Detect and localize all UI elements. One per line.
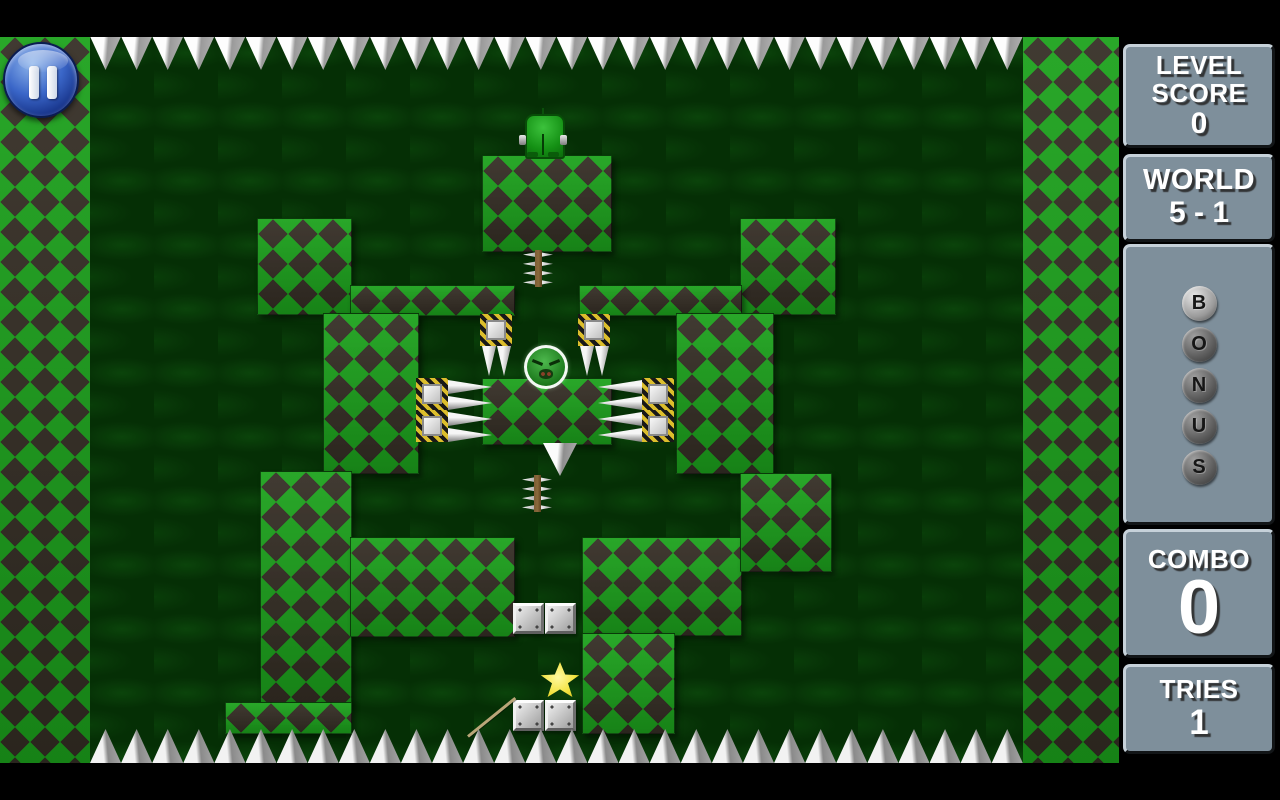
tile-block [323, 313, 419, 474]
spike-icon [525, 729, 556, 763]
level-score-value: 0 [1191, 107, 1208, 142]
spike-icon [556, 729, 587, 763]
spike-icon [214, 729, 245, 763]
bonus-letter: B [1192, 292, 1206, 315]
ceiling-spikes [90, 37, 1023, 70]
spike-icon [619, 37, 650, 70]
spike-icon [463, 37, 494, 70]
tries-value: 1 [1189, 703, 1208, 743]
player-hand-icon [560, 135, 567, 145]
spike-icon [339, 729, 370, 763]
tile-block [582, 633, 675, 734]
bonus-coin: O [1182, 327, 1217, 362]
spike-icon [432, 37, 463, 70]
spike-icon [277, 729, 308, 763]
spike-icon [183, 729, 214, 763]
tile-block [579, 285, 742, 316]
tries-panel: TRIES 1 [1123, 664, 1275, 754]
player-legs-gap [542, 134, 544, 155]
spike-icon [898, 729, 929, 763]
bonus-panel: B O N U S [1123, 244, 1275, 525]
left-wall [0, 37, 90, 763]
spike-icon [214, 37, 245, 70]
spike-icon [867, 729, 898, 763]
tile-block [676, 313, 774, 474]
spike-icon [245, 37, 276, 70]
player-hand-icon [519, 135, 526, 145]
spike-icon [650, 729, 681, 763]
game-screen: LEVEL SCORE 0 WORLD 5 - 1 B O N U S COMB… [0, 0, 1280, 800]
tile-block [257, 218, 352, 315]
spike-icon [525, 37, 556, 70]
metal-crate [513, 603, 544, 634]
spike-icon [494, 729, 525, 763]
bonus-coin: S [1182, 450, 1217, 485]
spike-icon [308, 729, 339, 763]
spike-icon [836, 37, 867, 70]
player-foot-icon [527, 152, 538, 157]
bonus-coin: B [1182, 286, 1217, 321]
spike-trap-block [642, 378, 674, 410]
spike-icon [121, 37, 152, 70]
level-score-panel: LEVEL SCORE 0 [1123, 44, 1275, 148]
spike-icon [183, 37, 214, 70]
spike-icon [867, 37, 898, 70]
pole-icon [535, 250, 542, 287]
spike-icon [836, 729, 867, 763]
spike-icon [588, 37, 619, 70]
spike-icon [401, 37, 432, 70]
player-character [518, 110, 568, 157]
spike-icon [743, 729, 774, 763]
tries-label: TRIES [1159, 675, 1238, 703]
spike-icon [432, 729, 463, 763]
hud-sidebar: LEVEL SCORE 0 WORLD 5 - 1 B O N U S COMB… [1119, 0, 1280, 800]
pause-button[interactable] [3, 42, 79, 118]
spike-icon [712, 37, 743, 70]
combo-value: 0 [1178, 573, 1220, 643]
spike-icon [401, 729, 432, 763]
player-foot-icon [548, 152, 559, 157]
spike-trap-block [416, 378, 448, 410]
spike-icon [743, 37, 774, 70]
bonus-coin: U [1182, 409, 1217, 444]
spike-icon [961, 729, 992, 763]
spike-icon [308, 37, 339, 70]
spike-trap-block [416, 410, 448, 442]
bonus-letter: O [1191, 333, 1207, 356]
spike-icon [370, 37, 401, 70]
spike-icon [930, 37, 961, 70]
spike-icon [339, 37, 370, 70]
pause-icon [29, 66, 39, 99]
spike-trap-block [480, 314, 512, 346]
world-label: WORLD [1143, 165, 1255, 196]
metal-crate [545, 700, 576, 731]
bonus-coin: N [1182, 368, 1217, 403]
spike-icon [650, 37, 681, 70]
spike-icon [245, 729, 276, 763]
spike-icon [930, 729, 961, 763]
floor-spikes [90, 729, 1023, 763]
spike-trap-block [642, 410, 674, 442]
spike-icon [992, 37, 1023, 70]
metal-crate [513, 700, 544, 731]
enemy-snout-icon [539, 369, 553, 379]
enemy-eye-icon [549, 359, 560, 366]
tile-block [740, 218, 836, 315]
spike-icon [463, 729, 494, 763]
tile-block [350, 285, 515, 316]
pause-icon [47, 66, 57, 99]
tile-block [740, 473, 832, 572]
enemy-green-blob [524, 345, 568, 389]
spike-icon [556, 37, 587, 70]
level-score-label-line1: LEVEL [1156, 51, 1242, 79]
tile-block [350, 537, 515, 637]
spike-icon [992, 729, 1023, 763]
bonus-letter: N [1192, 374, 1206, 397]
spike-icon [681, 729, 712, 763]
spike-icon [774, 37, 805, 70]
spike-icon [90, 37, 121, 70]
thorn-pole [522, 250, 554, 287]
tile-block [482, 155, 612, 252]
spike-icon [805, 37, 836, 70]
combo-panel: COMBO 0 [1123, 529, 1275, 658]
right-wall [1023, 37, 1119, 763]
spike-icon [774, 729, 805, 763]
spike-icon [898, 37, 929, 70]
level-score-label-line2: SCORE [1152, 79, 1247, 107]
enemy-eye-icon [532, 359, 543, 366]
spike-icon [152, 729, 183, 763]
spike-icon [681, 37, 712, 70]
world-value: 5 - 1 [1169, 196, 1229, 231]
tile-block [582, 537, 742, 636]
tile-block [260, 471, 352, 704]
bonus-letter: U [1192, 415, 1206, 438]
world-panel: WORLD 5 - 1 [1123, 154, 1275, 242]
pole-icon [534, 475, 541, 512]
spike-icon [121, 729, 152, 763]
bonus-letter: S [1192, 456, 1205, 479]
spike-icon [961, 37, 992, 70]
thorn-pole [521, 475, 553, 512]
spike-icon [277, 37, 308, 70]
spike-icon [588, 729, 619, 763]
metal-crate [545, 603, 576, 634]
spike-icon [712, 729, 743, 763]
spike-trap-block [578, 314, 610, 346]
spike-icon [370, 729, 401, 763]
spike-icon [494, 37, 525, 70]
spike-icon [805, 729, 836, 763]
spike-icon [90, 729, 121, 763]
spike-icon [619, 729, 650, 763]
spike-icon [152, 37, 183, 70]
